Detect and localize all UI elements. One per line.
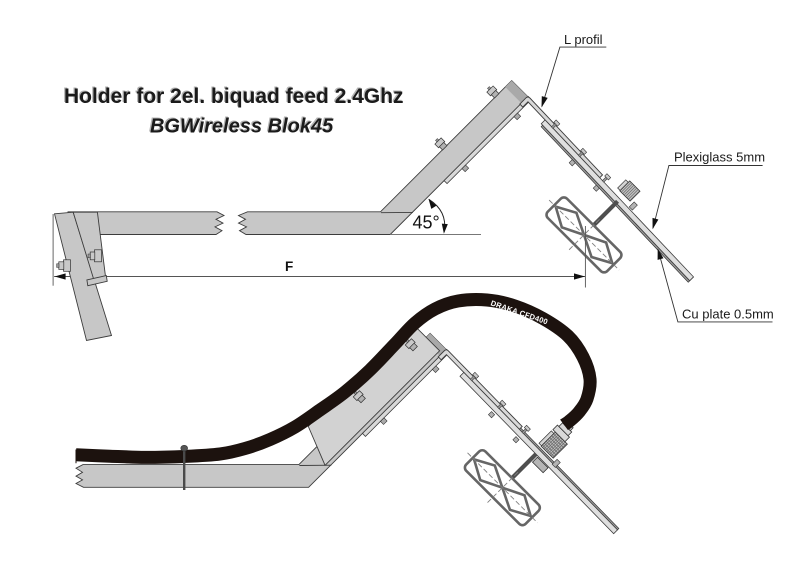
svg-text:Cu plate 0.5mm: Cu plate 0.5mm [682,307,774,322]
svg-text:Holder for 2el. biquad feed 2.: Holder for 2el. biquad feed 2.4Ghz [64,85,404,108]
svg-text:L profil: L profil [564,32,603,47]
svg-text:BGWireless Blok45: BGWireless Blok45 [150,116,334,138]
svg-text:F: F [285,259,293,274]
svg-text:45°: 45° [413,213,440,233]
svg-text:Plexiglass 5mm: Plexiglass 5mm [674,150,765,165]
